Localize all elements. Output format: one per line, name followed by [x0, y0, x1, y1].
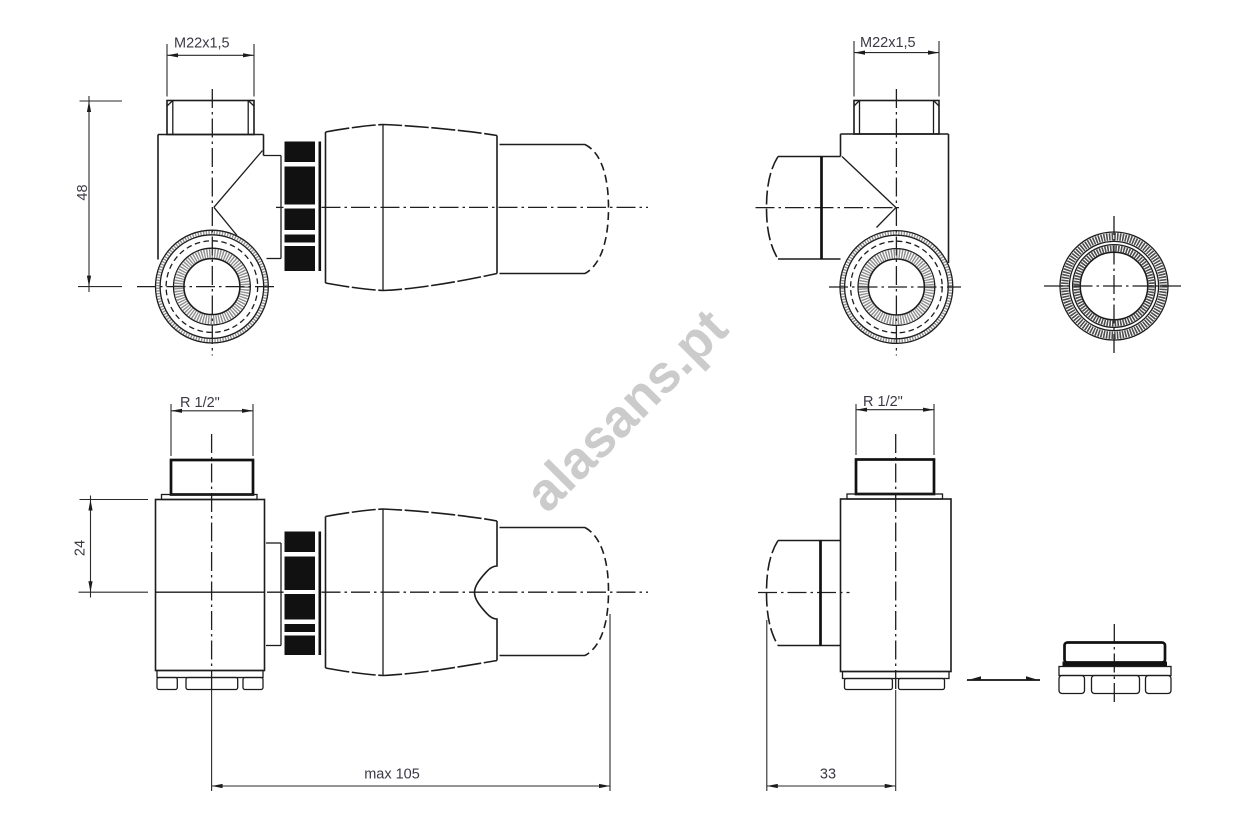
svg-text:M22x1,5: M22x1,5 — [174, 36, 230, 52]
svg-text:R 1/2": R 1/2" — [863, 394, 903, 410]
svg-text:R 1/2": R 1/2" — [180, 395, 220, 411]
svg-text:33: 33 — [820, 767, 836, 783]
svg-text:M22x1,5: M22x1,5 — [860, 35, 916, 51]
svg-text:24: 24 — [73, 540, 89, 556]
svg-text:max 105: max 105 — [364, 767, 420, 783]
